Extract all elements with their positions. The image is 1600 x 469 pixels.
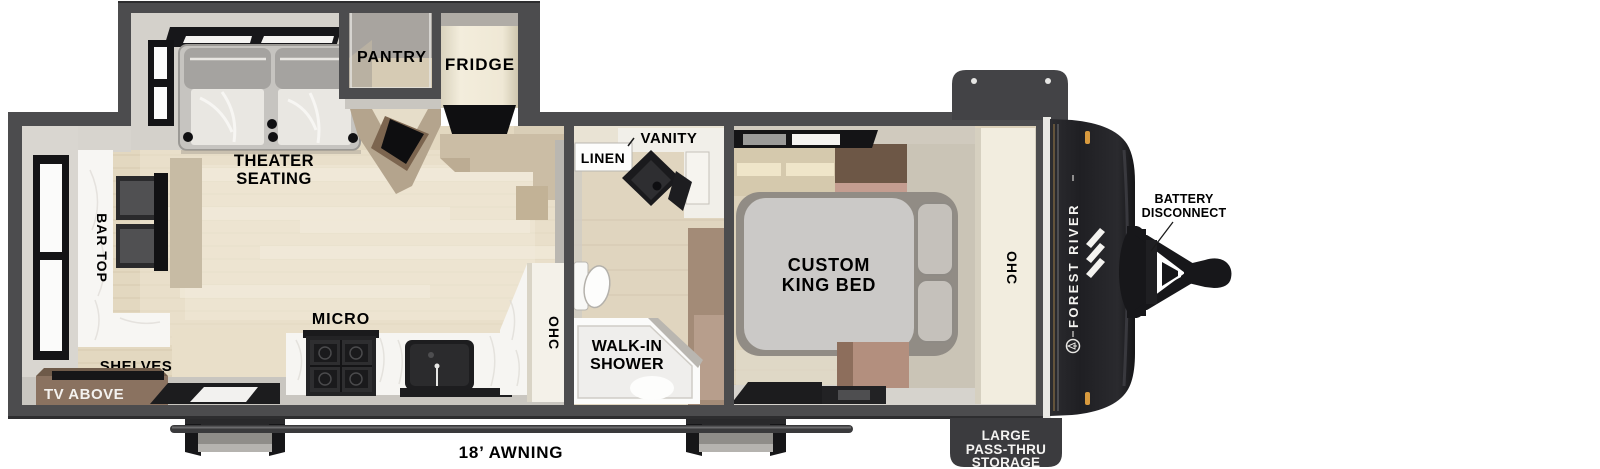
svg-text:STORAGE: STORAGE — [972, 455, 1041, 469]
svg-text:BATTERY: BATTERY — [1154, 192, 1213, 206]
svg-text:FOREST RIVER: FOREST RIVER — [1066, 203, 1081, 328]
svg-text:OHC: OHC — [1004, 251, 1020, 285]
svg-text:LINEN: LINEN — [581, 150, 626, 166]
svg-text:LARGE: LARGE — [982, 428, 1031, 443]
svg-text:KING BED: KING BED — [782, 275, 876, 295]
svg-text:THEATER: THEATER — [234, 152, 314, 170]
svg-text:SHOWER: SHOWER — [590, 356, 664, 373]
svg-text:WALK-IN: WALK-IN — [592, 338, 663, 355]
svg-text:CUSTOM: CUSTOM — [788, 255, 870, 275]
svg-text:SEATING: SEATING — [236, 170, 312, 188]
svg-text:VANITY: VANITY — [641, 130, 698, 147]
svg-text:TV ABOVE: TV ABOVE — [44, 386, 124, 403]
svg-text:DISCONNECT: DISCONNECT — [1142, 206, 1227, 220]
svg-text:OHC: OHC — [546, 316, 562, 350]
svg-text:PANTRY: PANTRY — [357, 49, 427, 66]
svg-text:FRIDGE: FRIDGE — [445, 55, 515, 74]
svg-text:MICRO: MICRO — [312, 311, 370, 328]
svg-text:18’ AWNING: 18’ AWNING — [459, 443, 564, 462]
svg-text:BAR TOP: BAR TOP — [94, 213, 110, 283]
